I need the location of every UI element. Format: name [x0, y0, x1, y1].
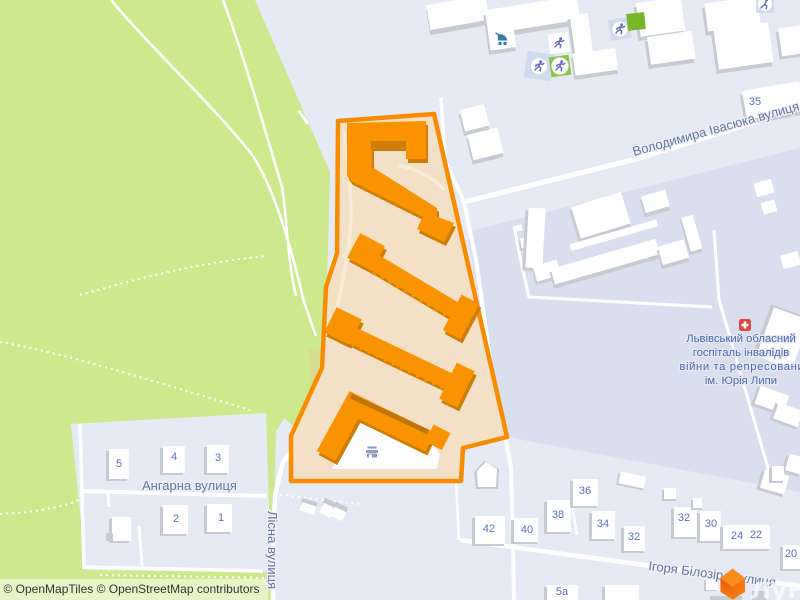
svg-text:40: 40 — [521, 524, 533, 536]
svg-text:війни та репресованих: війни та репресованих — [679, 361, 800, 373]
svg-text:2: 2 — [173, 513, 179, 525]
svg-text:35: 35 — [749, 96, 761, 108]
svg-text:30: 30 — [705, 518, 717, 530]
svg-text:5: 5 — [116, 458, 122, 470]
svg-text:32: 32 — [678, 512, 690, 524]
svg-text:лун: лун — [751, 570, 800, 600]
svg-text:3: 3 — [215, 452, 221, 464]
svg-text:32: 32 — [628, 531, 640, 543]
svg-text:22: 22 — [750, 529, 762, 541]
svg-text:5a: 5a — [556, 586, 569, 598]
svg-text:1: 1 — [218, 512, 224, 524]
svg-text:34: 34 — [597, 518, 609, 530]
svg-text:24: 24 — [731, 530, 743, 542]
svg-text:36: 36 — [579, 485, 591, 497]
svg-text:© OpenMapTiles © OpenStreetMap: © OpenMapTiles © OpenStreetMap contribut… — [4, 582, 260, 596]
svg-text:38: 38 — [552, 509, 564, 521]
svg-text:госпіталь інвалідів: госпіталь інвалідів — [693, 347, 790, 359]
svg-text:ім. Юрія Липи: ім. Юрія Липи — [705, 375, 777, 387]
svg-text:Львівський обласний: Львівський обласний — [686, 333, 796, 345]
svg-text:42: 42 — [483, 523, 495, 535]
svg-text:Лісна вулиця: Лісна вулиця — [265, 511, 280, 589]
svg-text:Ангарна вулиця: Ангарна вулиця — [142, 478, 237, 493]
svg-text:20: 20 — [785, 548, 797, 560]
svg-text:4: 4 — [171, 451, 177, 463]
